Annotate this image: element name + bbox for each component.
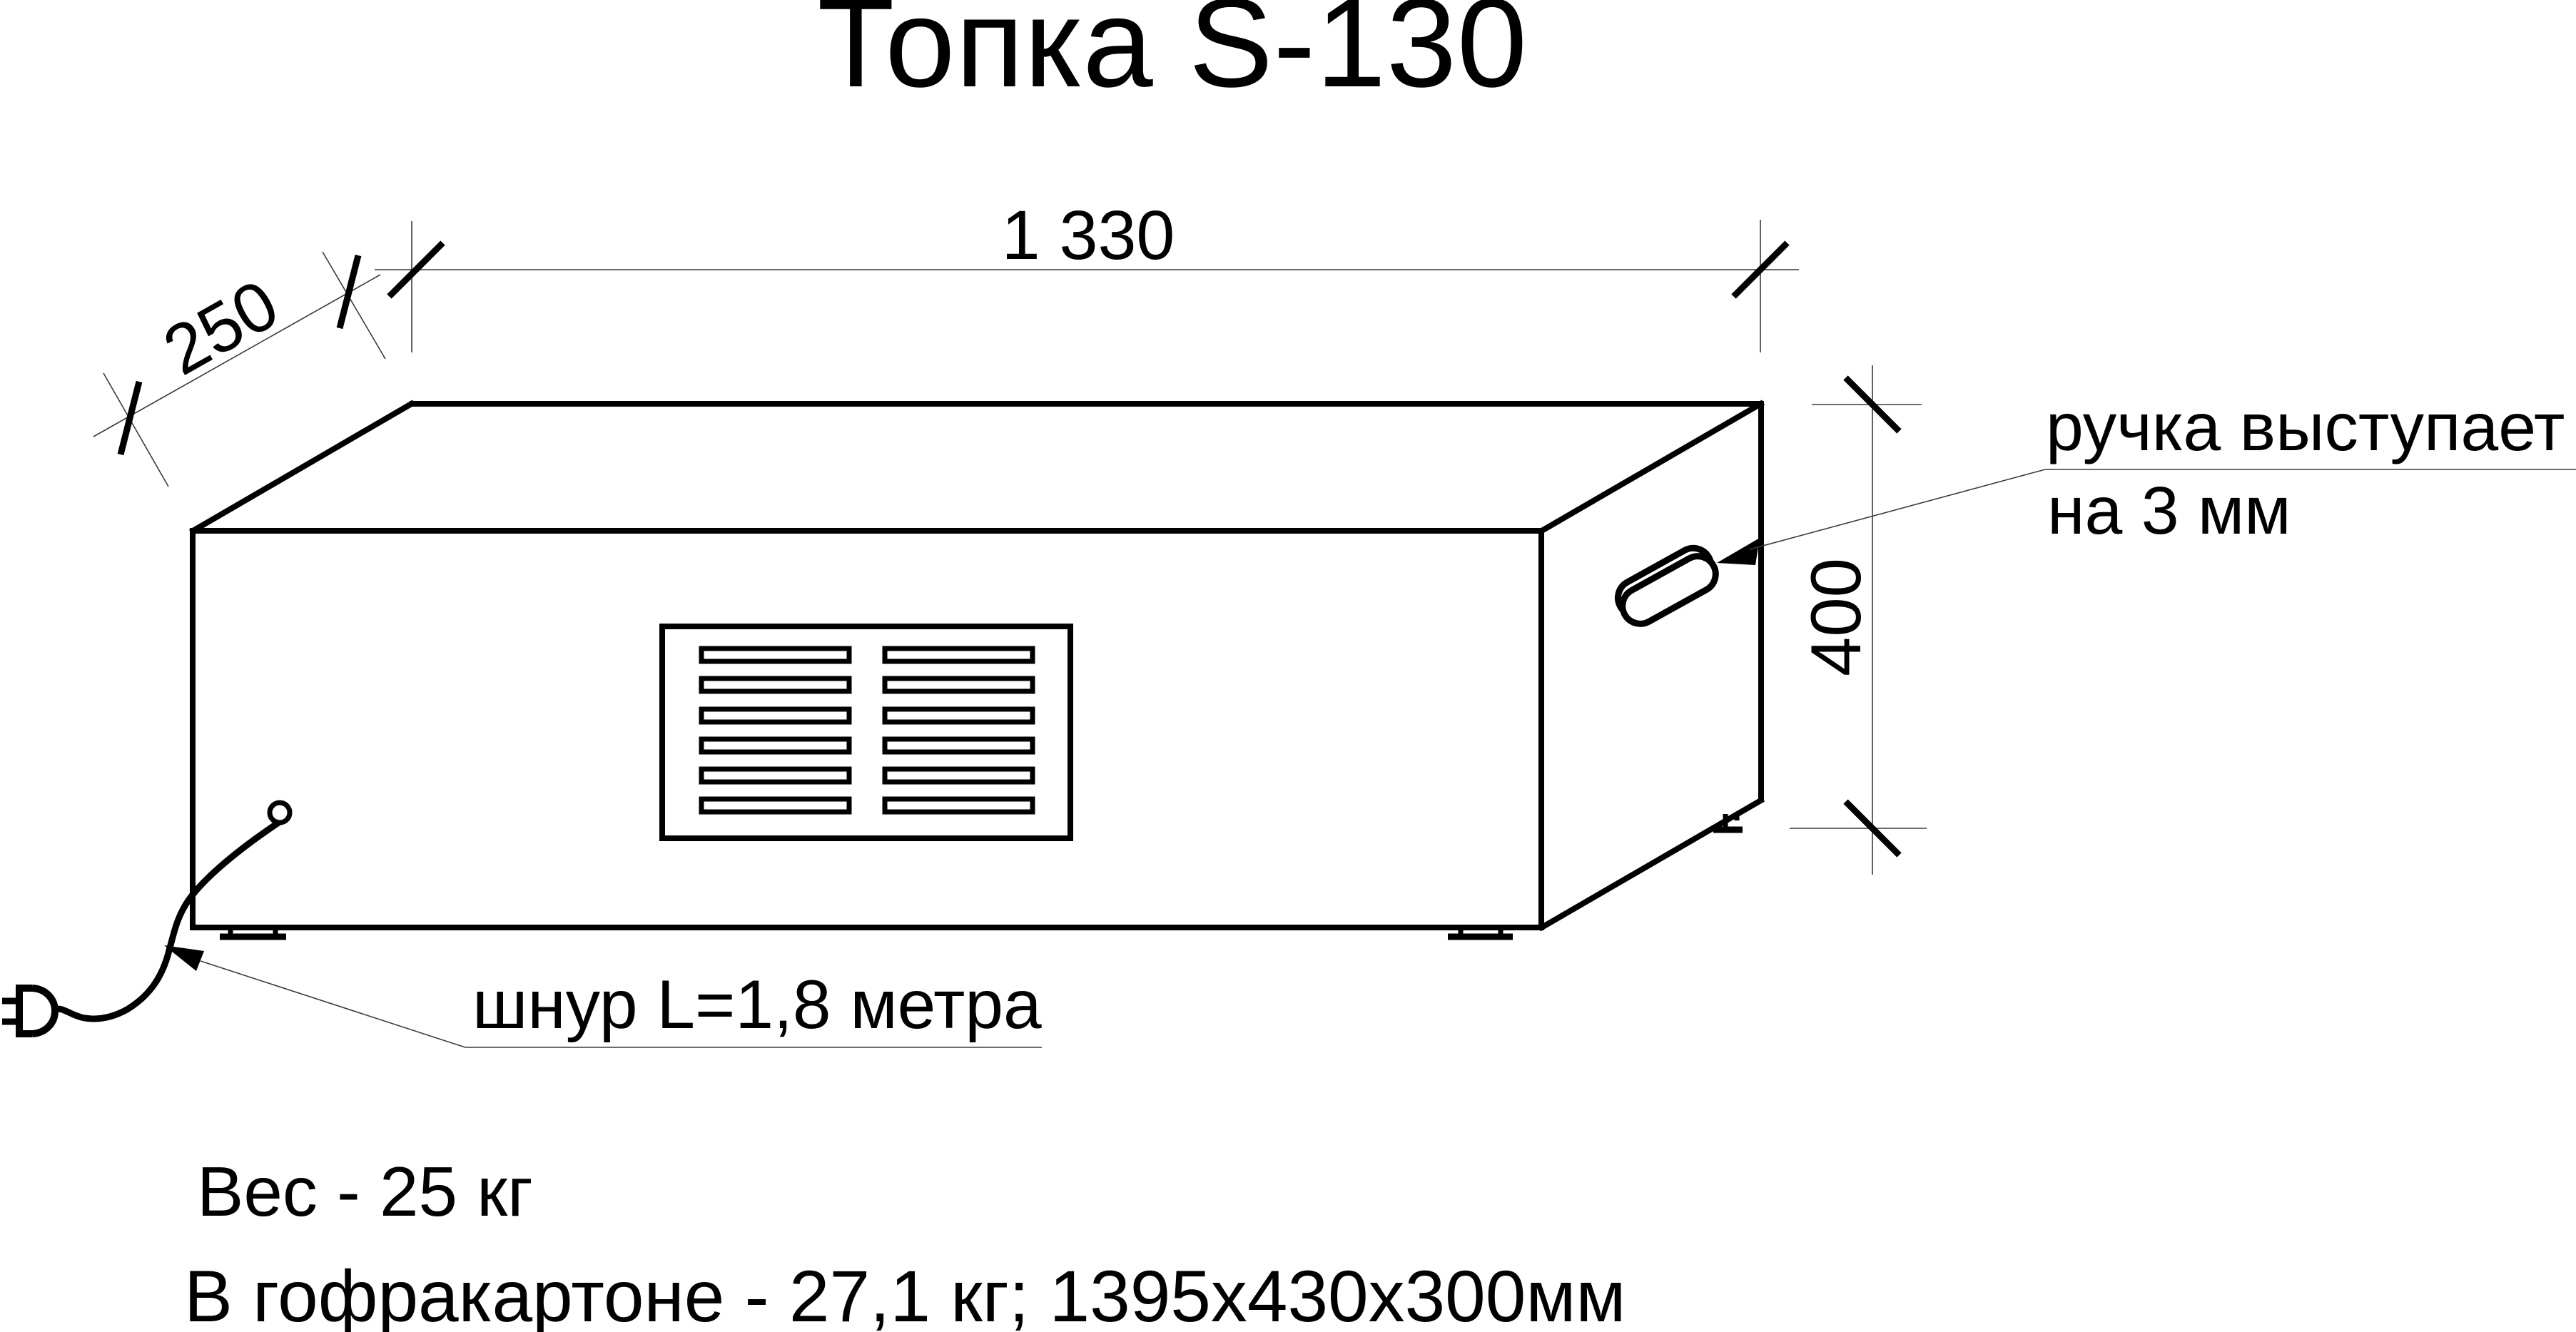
svg-text:400: 400 bbox=[1797, 558, 1876, 676]
svg-text:шнур L=1,8 метра: шнур L=1,8 метра bbox=[472, 967, 1042, 1043]
svg-text:В гофракартоне - 27,1 кг; 1395: В гофракартоне - 27,1 кг; 1395х430х300мм bbox=[184, 1256, 1626, 1332]
svg-text:на 3 мм: на 3 мм bbox=[2047, 473, 2291, 549]
svg-text:Вес - 25 кг: Вес - 25 кг bbox=[197, 1152, 533, 1231]
svg-text:1 330: 1 330 bbox=[1002, 196, 1175, 274]
svg-text:Топка S-130: Топка S-130 bbox=[817, 0, 1527, 113]
svg-text:ручка выступает: ручка выступает bbox=[2046, 390, 2565, 465]
